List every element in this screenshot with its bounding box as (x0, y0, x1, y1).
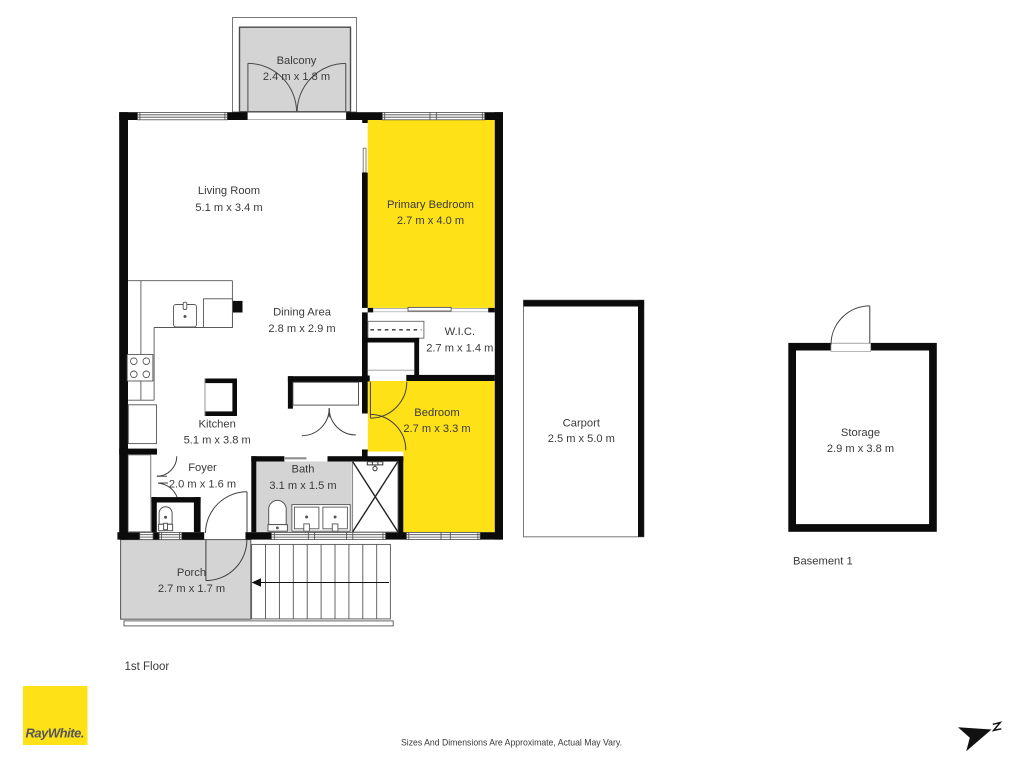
svg-text:Dining Area: Dining Area (273, 306, 332, 318)
svg-text:Storage: Storage (841, 427, 880, 439)
svg-text:2.5 m x 5.0 m: 2.5 m x 5.0 m (548, 433, 615, 445)
svg-text:Basement 1: Basement 1 (793, 556, 853, 568)
svg-text:Bedroom: Bedroom (414, 407, 459, 419)
svg-text:Porch: Porch (177, 567, 206, 579)
svg-text:Carport: Carport (563, 417, 601, 429)
svg-text:Foyer: Foyer (188, 462, 217, 474)
svg-text:Living Room: Living Room (198, 185, 260, 197)
svg-text:5.1 m x 3.4 m: 5.1 m x 3.4 m (195, 202, 262, 214)
svg-text:1st Floor: 1st Floor (125, 661, 170, 673)
svg-text:3.1 m x 1.5 m: 3.1 m x 1.5 m (269, 480, 336, 492)
svg-text:2.7 m x 1.4 m: 2.7 m x 1.4 m (426, 343, 493, 355)
svg-text:5.1 m x 3.8 m: 5.1 m x 3.8 m (184, 435, 251, 447)
svg-text:Bath: Bath (291, 464, 314, 476)
svg-text:Sizes And Dimensions Are Appro: Sizes And Dimensions Are Approximate, Ac… (401, 737, 622, 748)
svg-text:2.4 m x 1.8 m: 2.4 m x 1.8 m (263, 71, 330, 83)
svg-text:Primary Bedroom: Primary Bedroom (387, 199, 474, 211)
svg-text:2.7 m x 4.0 m: 2.7 m x 4.0 m (397, 215, 464, 227)
svg-text:Kitchen: Kitchen (199, 419, 236, 431)
svg-text:Balcony: Balcony (277, 55, 317, 67)
svg-text:2.9 m x 3.8 m: 2.9 m x 3.8 m (827, 443, 894, 455)
svg-text:2.0 m x 1.6 m: 2.0 m x 1.6 m (169, 479, 236, 491)
svg-text:2.8 m x 2.9 m: 2.8 m x 2.9 m (268, 323, 335, 335)
svg-text:W.I.C.: W.I.C. (445, 326, 475, 338)
svg-text:2.7 m x 3.3 m: 2.7 m x 3.3 m (403, 423, 470, 435)
svg-text:2.7 m x 1.7 m: 2.7 m x 1.7 m (158, 583, 225, 595)
svg-text:RayWhite.: RayWhite. (26, 726, 85, 741)
